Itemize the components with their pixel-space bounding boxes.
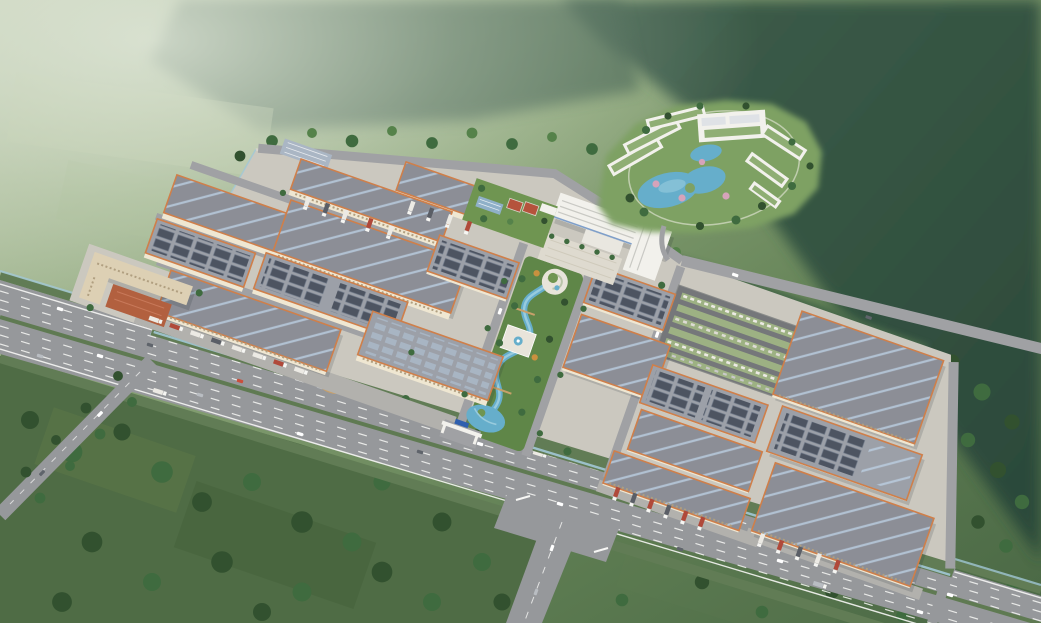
resort-main-building [697,110,767,143]
aerial-rendering: Aerial bird's-eye architectural renderin… [0,0,1041,623]
rendering-canvas [0,0,1041,623]
